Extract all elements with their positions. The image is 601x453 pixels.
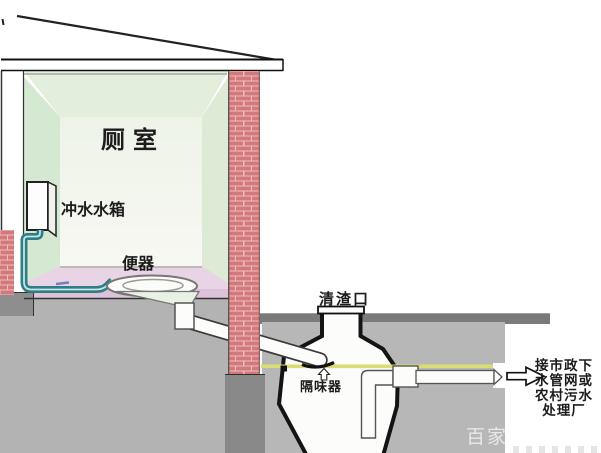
- outlet-destination-note: 接市政下 水管网或 农村污水 处理厂: [532, 358, 596, 418]
- brick-pillar: [228, 71, 260, 375]
- faint-cropped-text: [513, 446, 598, 453]
- odor-trap-label: 隔味器: [300, 376, 342, 395]
- flush-pipe: [24, 230, 112, 290]
- floor-drain-mark: [56, 283, 69, 285]
- septic-system-diagram: 厕室 冲水水箱 便器 清渣口 隔味器 接市政下 水管网或 农村污水 处理厂 百家…: [0, 0, 601, 453]
- water-level-line: [261, 365, 504, 369]
- flush-tank: [27, 182, 56, 236]
- room-label: 厕室: [101, 120, 165, 155]
- pillar-foundation: [225, 374, 265, 453]
- watermark: 百家号: [466, 422, 529, 449]
- cleanout-label: 清渣口: [319, 288, 370, 309]
- toilet-label: 便器: [122, 250, 154, 274]
- roof: [1, 16, 283, 74]
- flush-tank-label: 冲水水箱: [61, 196, 125, 220]
- left-brick-wall: [0, 230, 14, 295]
- toilet-funnel: [116, 292, 199, 330]
